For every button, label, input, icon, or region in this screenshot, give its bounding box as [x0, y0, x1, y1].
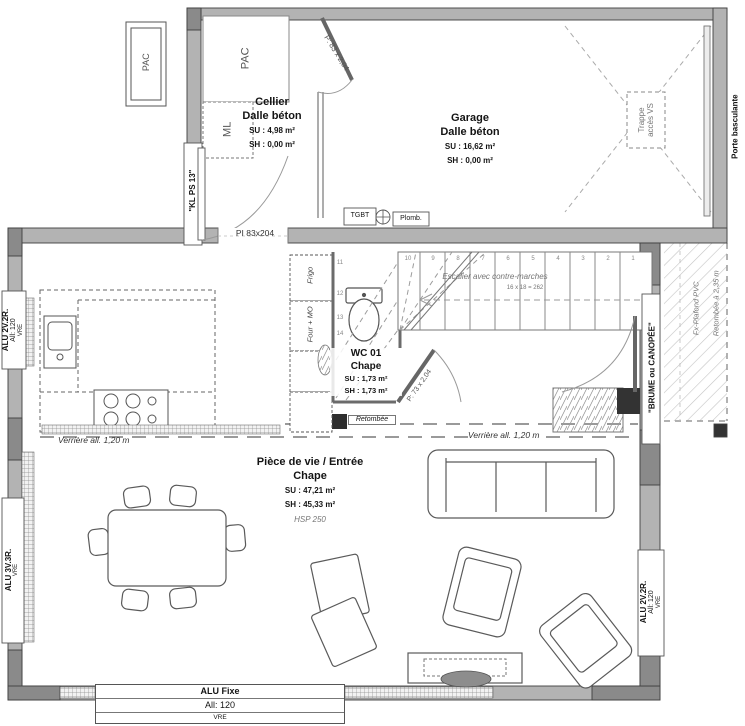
retombee-label: Retombée — [348, 415, 396, 425]
stair-winder-number: 12 — [334, 291, 346, 298]
window-label-right-lower: ALU 2V.2R. All: 120 VRE — [638, 552, 664, 652]
window-sill: All: 120 — [648, 590, 656, 613]
stair-tread-number: 6 — [502, 256, 514, 263]
room-su: SU : 47,21 m² — [240, 486, 380, 496]
trappe-line2: accès VS — [646, 103, 655, 137]
stair-winder-number: 14 — [334, 331, 346, 338]
bay-window-label: "BRUME ou CANOPÉE" — [647, 294, 656, 442]
verriere-left-label: Verrière all. 1,20 m — [58, 436, 130, 446]
stair-tread-number: 3 — [577, 256, 589, 263]
room-floor: Chape — [240, 470, 380, 484]
cooktop-symbol — [94, 390, 168, 428]
room-sh: SH : 0,00 m² — [405, 156, 535, 166]
armchair-2 — [536, 590, 634, 691]
window-type: ALU 3V.3R. — [4, 549, 13, 591]
room-name: Garage — [405, 112, 535, 126]
room-label-living: Pièce de vie / Entrée Chape SU : 47,21 m… — [240, 456, 380, 525]
window-type: ALU 2V.2R. — [639, 581, 648, 623]
plomb-label: Plomb. — [393, 215, 429, 223]
room-name: Pièce de vie / Entrée — [240, 456, 380, 470]
floor-plan: PAC PAC ML Cellier Dalle béton SU : 4,98… — [0, 0, 745, 726]
stair-winder-number: 13 — [334, 315, 346, 322]
pac-indoor-label: PAC — [240, 18, 253, 98]
room-name: Cellier — [212, 96, 332, 110]
stair-tread-number: 1 — [627, 256, 639, 263]
room-name: WC 01 — [330, 348, 402, 361]
terrace-drop-label: Retombée à 2,35 m — [713, 243, 722, 363]
tgbt-label: TGBT — [344, 212, 376, 220]
room-floor: Dalle béton — [405, 126, 535, 140]
stair-tread-number: 4 — [552, 256, 564, 263]
stair-tread-number: 5 — [527, 256, 539, 263]
terrace-ceiling-label: Fx-Plafond PVC — [693, 248, 702, 368]
trappe-line1: Trappe — [637, 107, 646, 132]
window-option: VRE — [18, 324, 25, 336]
room-floor: Chape — [330, 361, 402, 374]
window-type: ALU Fixe — [96, 685, 344, 698]
window-sill: All: 120 — [10, 318, 18, 341]
stair-tread-number: 7 — [477, 256, 489, 263]
room-su: SU : 1,73 m² — [330, 374, 402, 383]
stair-winder-number: 11 — [334, 260, 346, 267]
verriere-left-band — [42, 425, 280, 434]
room-sh: SH : 45,33 m² — [240, 500, 380, 510]
window-type: ALU 2V.2R. — [1, 309, 10, 351]
sink-symbol — [44, 316, 76, 368]
stair-tread-number: 10 — [402, 256, 414, 263]
garage-door-label: Porte basculante — [730, 62, 739, 192]
tv-unit — [408, 653, 522, 687]
room-su: SU : 4,98 m² — [212, 126, 332, 136]
room-label-garage: Garage Dalle béton SU : 16,62 m² SH : 0,… — [405, 112, 535, 166]
room-hsp: HSP 250 — [240, 515, 380, 525]
window-option: VRE — [656, 596, 663, 608]
room-su: SU : 16,62 m² — [405, 142, 535, 152]
side-tables — [310, 554, 377, 668]
room-label-wc: WC 01 Chape SU : 1,73 m² SH : 1,73 m² — [330, 348, 402, 396]
window-label-left-lower: ALU 3V.3R. VRE — [2, 500, 22, 640]
stairs-formula: 16 x 18 = 262 — [495, 285, 555, 292]
stair-tread-number: 2 — [602, 256, 614, 263]
stair-tread-number: 8 — [452, 256, 464, 263]
room-sh: SH : 1,73 m² — [330, 386, 402, 395]
sofa — [428, 450, 614, 518]
stair-tread-number: 9 — [427, 256, 439, 263]
room-floor: Dalle béton — [212, 110, 332, 124]
stairs-label: Escalier avec contre-marches — [420, 272, 570, 281]
armchair-1 — [441, 545, 522, 638]
window-label-left-upper: ALU 2V.2R. All: 120 VRE — [0, 291, 26, 369]
trappe-label: Trappe accès VS — [634, 85, 658, 155]
four-label: Four + MO — [307, 289, 316, 359]
door-label-cellier: "KL PS 13" — [188, 143, 197, 238]
verriere-right-band — [553, 388, 623, 432]
post-center — [332, 414, 347, 429]
window-option: VRE — [13, 564, 20, 576]
verriere-right-label: Verrière all. 1,20 m — [468, 431, 540, 441]
pac-outdoor-label: PAC — [141, 22, 151, 102]
room-label-cellier: Cellier Dalle béton SU : 4,98 m² SH : 0,… — [212, 96, 332, 150]
window-option: VRE — [96, 712, 344, 723]
window-label-bottom: ALU Fixe All: 120 VRE — [95, 684, 345, 724]
window-sill: All: 120 — [96, 698, 344, 712]
passage-label: PI 83x204 — [222, 229, 288, 239]
dining-table-set — [87, 485, 246, 612]
room-sh: SH : 0,00 m² — [212, 140, 332, 150]
garage-door-leaf — [704, 26, 710, 216]
